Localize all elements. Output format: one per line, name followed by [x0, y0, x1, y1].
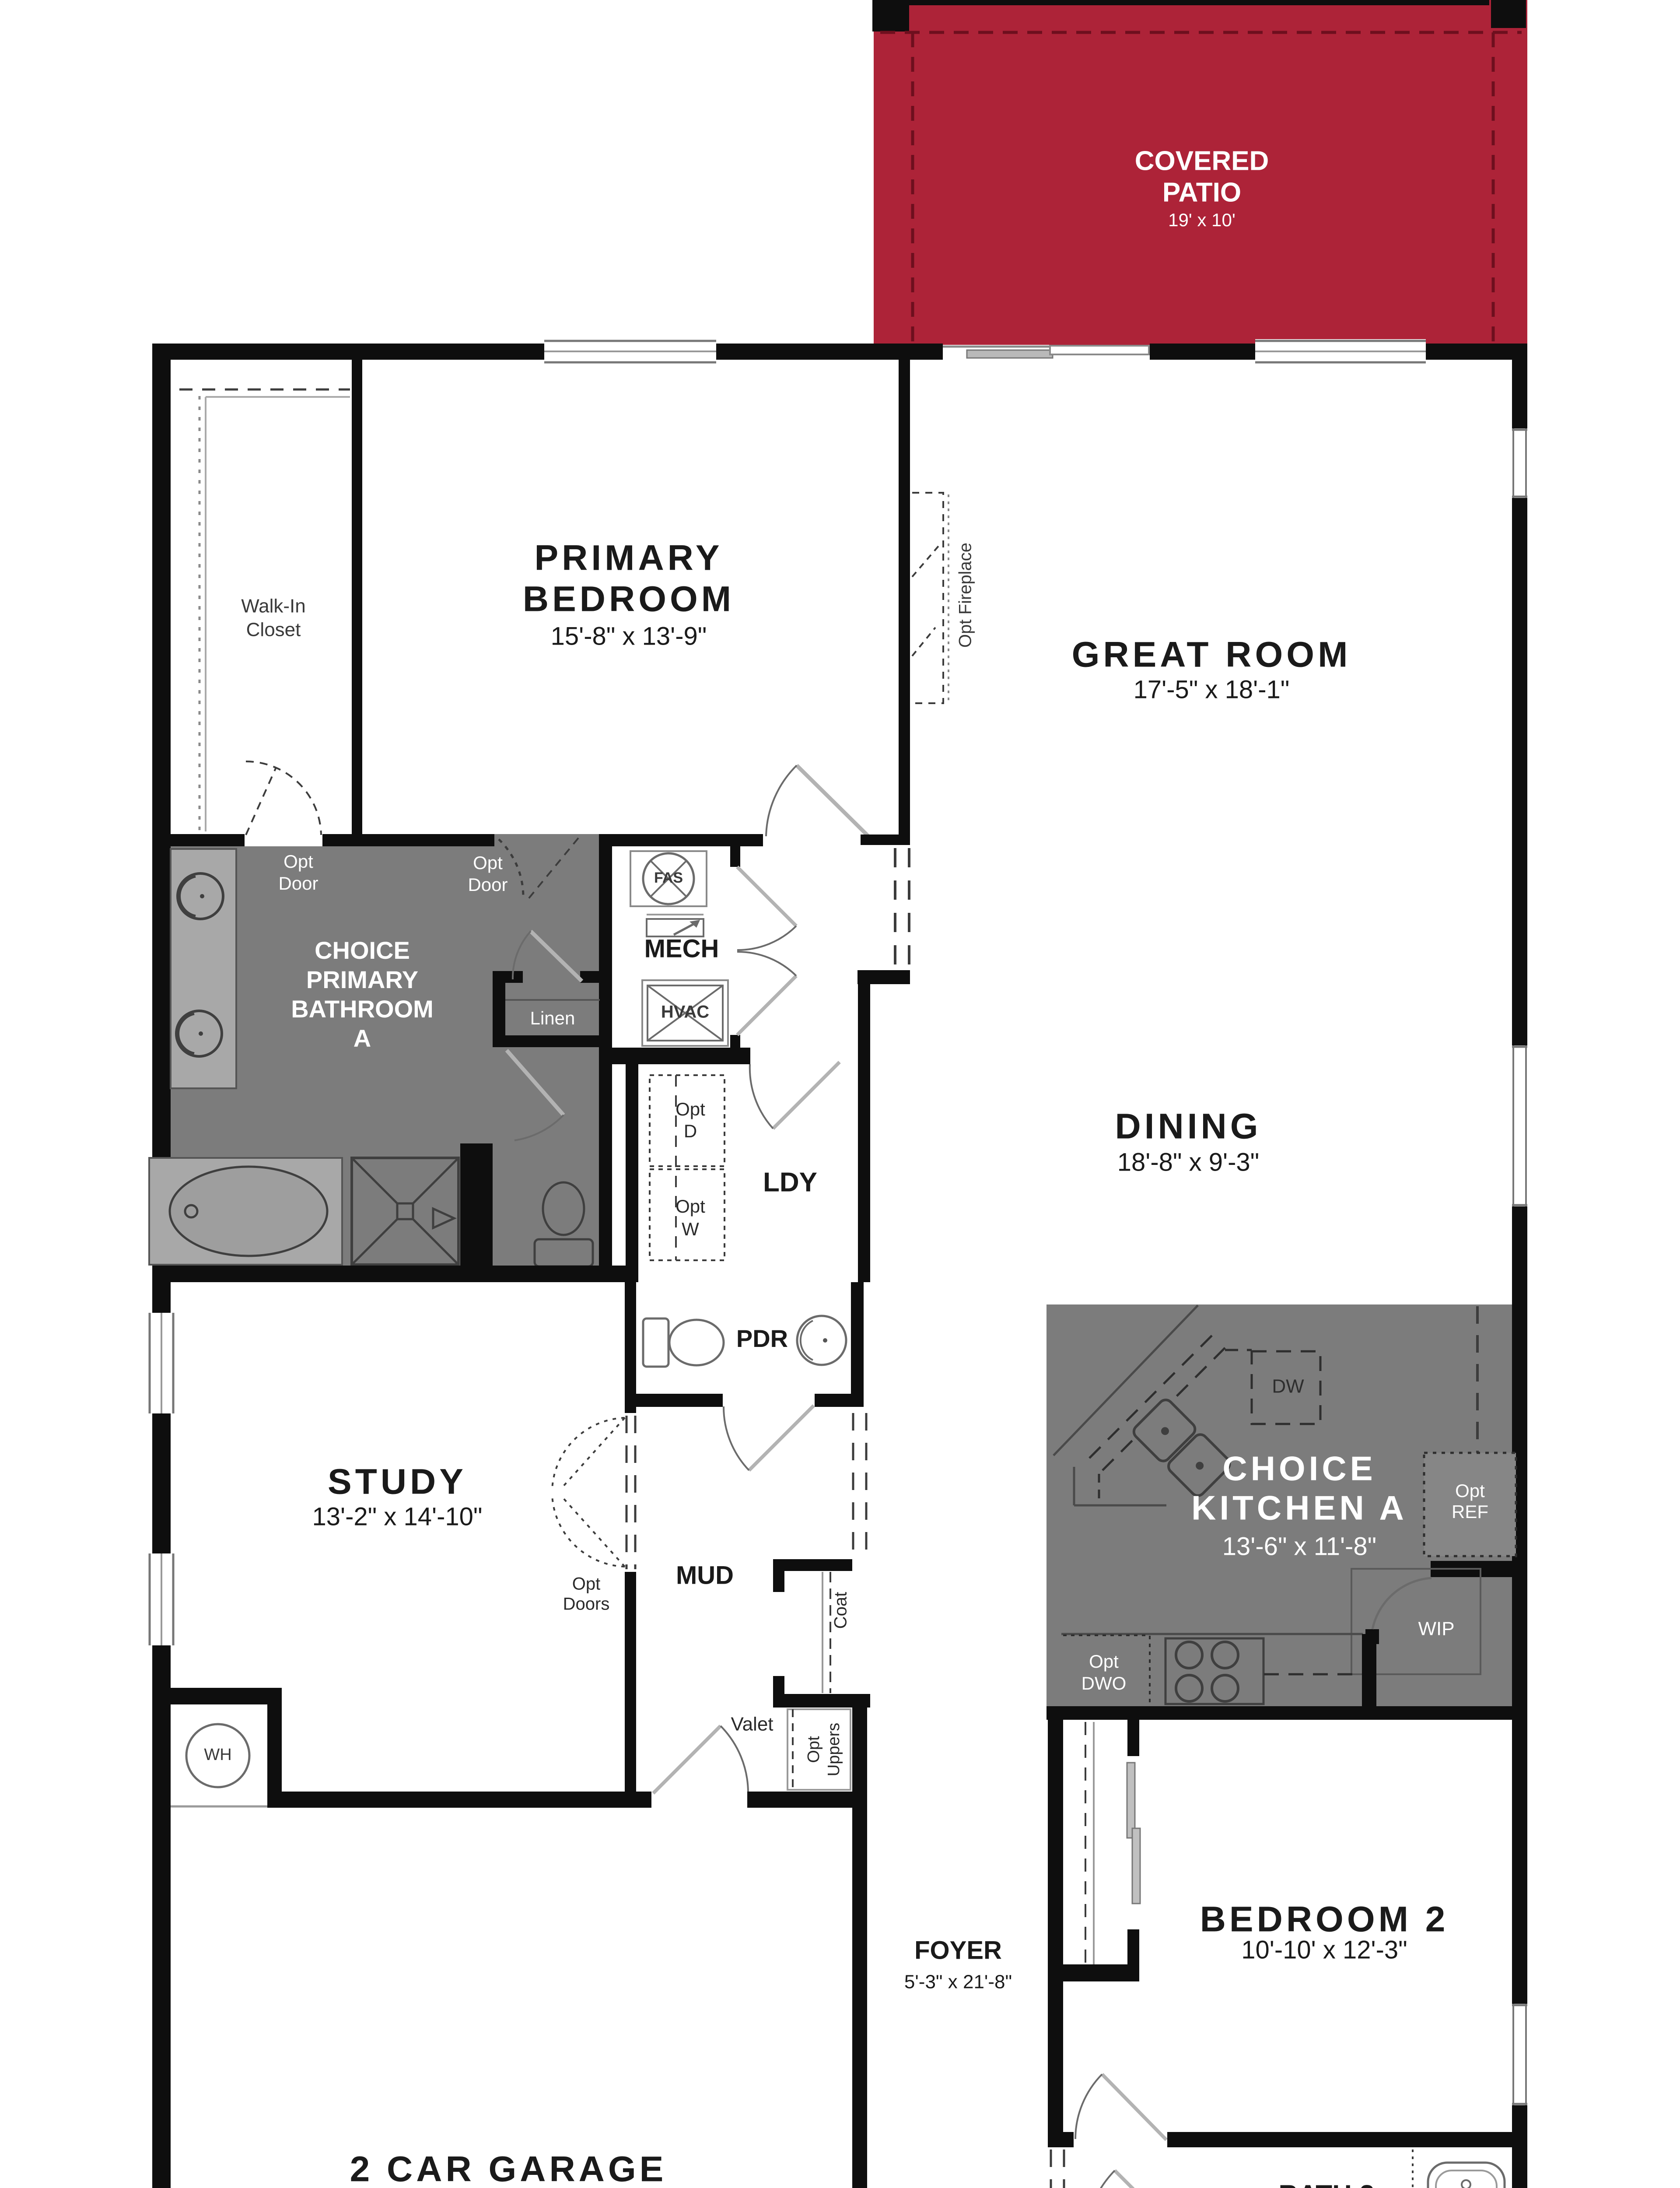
svg-text:13'-6" x 11'-8": 13'-6" x 11'-8": [1222, 1532, 1376, 1560]
svg-text:Coat: Coat: [831, 1592, 850, 1629]
svg-text:KITCHEN A: KITCHEN A: [1191, 1489, 1407, 1527]
svg-text:LDY: LDY: [763, 1167, 817, 1197]
svg-text:Opt: Opt: [805, 1736, 823, 1763]
svg-text:Opt: Opt: [283, 851, 313, 872]
svg-text:A: A: [353, 1024, 371, 1052]
svg-text:PRIMARY: PRIMARY: [306, 966, 418, 993]
svg-text:2 CAR GARAGE: 2 CAR GARAGE: [350, 2149, 667, 2188]
svg-text:STUDY: STUDY: [328, 1462, 467, 1502]
svg-text:Doors: Doors: [563, 1595, 610, 1614]
svg-text:5'-3" x 21'-8": 5'-3" x 21'-8": [904, 1971, 1012, 1993]
svg-text:Opt: Opt: [473, 852, 503, 873]
svg-text:PRIMARY: PRIMARY: [534, 538, 723, 578]
svg-text:Valet: Valet: [731, 1714, 773, 1735]
svg-text:CHOICE: CHOICE: [315, 936, 410, 964]
svg-text:Door: Door: [468, 874, 507, 895]
svg-text:DINING: DINING: [1115, 1107, 1262, 1147]
svg-text:BEDROOM: BEDROOM: [523, 579, 735, 619]
svg-text:MUD: MUD: [676, 1561, 734, 1589]
svg-text:WIP: WIP: [1418, 1618, 1454, 1640]
svg-text:FAS: FAS: [654, 870, 683, 886]
svg-text:MECH: MECH: [644, 934, 719, 963]
svg-text:WH: WH: [204, 1746, 231, 1764]
svg-text:BATH 2: BATH 2: [1278, 2180, 1374, 2188]
svg-text:13'-2" x 14'-10": 13'-2" x 14'-10": [312, 1502, 483, 1531]
svg-text:DWO: DWO: [1081, 1673, 1127, 1694]
svg-text:Closet: Closet: [246, 619, 301, 641]
svg-text:Opt: Opt: [675, 1196, 705, 1217]
svg-text:BEDROOM 2: BEDROOM 2: [1200, 1900, 1449, 1939]
svg-text:HVAC: HVAC: [661, 1003, 709, 1022]
svg-text:CHOICE: CHOICE: [1222, 1449, 1376, 1488]
svg-text:FOYER: FOYER: [914, 1936, 1002, 1964]
svg-text:Door: Door: [278, 873, 318, 894]
svg-text:Opt: Opt: [1089, 1651, 1119, 1672]
svg-text:Opt Fireplace: Opt Fireplace: [956, 543, 975, 648]
svg-text:Opt: Opt: [1455, 1480, 1485, 1501]
svg-text:17'-5" x 18'-1": 17'-5" x 18'-1": [1134, 675, 1290, 704]
svg-text:W: W: [682, 1219, 699, 1239]
svg-text:Walk-In: Walk-In: [241, 596, 306, 617]
svg-text:BATHROOM: BATHROOM: [291, 995, 434, 1023]
svg-text:15'-8" x 13'-9": 15'-8" x 13'-9": [551, 622, 707, 650]
svg-text:D: D: [684, 1121, 697, 1141]
svg-text:PATIO: PATIO: [1162, 177, 1241, 207]
svg-text:DW: DW: [1272, 1376, 1304, 1397]
svg-text:Uppers: Uppers: [825, 1723, 843, 1777]
svg-text:COVERED: COVERED: [1135, 146, 1269, 176]
svg-text:Linen: Linen: [530, 1008, 575, 1028]
svg-text:REF: REF: [1452, 1501, 1488, 1522]
svg-text:Opt: Opt: [572, 1574, 600, 1594]
svg-text:10'-10' x 12'-3": 10'-10' x 12'-3": [1241, 1936, 1407, 1964]
svg-text:18'-8" x 9'-3": 18'-8" x 9'-3": [1117, 1148, 1259, 1176]
svg-text:GREAT ROOM: GREAT ROOM: [1072, 635, 1351, 675]
svg-text:Opt: Opt: [675, 1099, 705, 1119]
svg-text:PDR: PDR: [736, 1325, 788, 1352]
svg-text:19' x 10': 19' x 10': [1168, 210, 1235, 230]
